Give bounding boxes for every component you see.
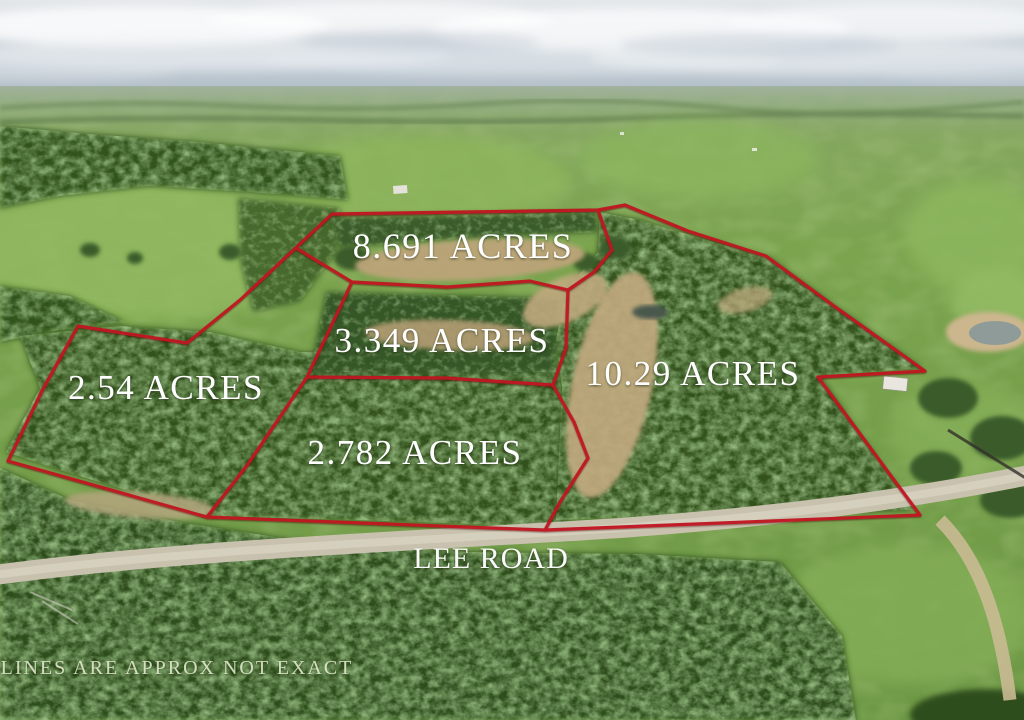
road-label: LEE ROAD xyxy=(413,542,568,575)
aerial-photo-canvas: 8.691 ACRES 3.349 ACRES 2.54 ACRES 10.29… xyxy=(0,0,1024,720)
pond-right xyxy=(969,321,1021,345)
house-right xyxy=(883,376,908,391)
clouds xyxy=(0,2,1024,81)
distant-building xyxy=(752,148,757,151)
house-distant xyxy=(393,185,408,194)
parcel-label-254: 2.54 ACRES xyxy=(68,368,264,407)
parcel-label-3349: 3.349 ACRES xyxy=(335,321,550,360)
pond-small xyxy=(632,305,668,319)
distant-building xyxy=(620,132,624,135)
parcel-label-8691: 8.691 ACRES xyxy=(353,226,574,266)
disclaimer-label: LINES ARE APPROX NOT EXACT xyxy=(1,657,354,679)
parcel-label-1029: 10.29 ACRES xyxy=(586,354,801,393)
parcel-label-2782: 2.782 ACRES xyxy=(308,433,523,472)
aerial-property-photo: 8.691 ACRES 3.349 ACRES 2.54 ACRES 10.29… xyxy=(0,0,1024,720)
sky xyxy=(0,0,1024,96)
